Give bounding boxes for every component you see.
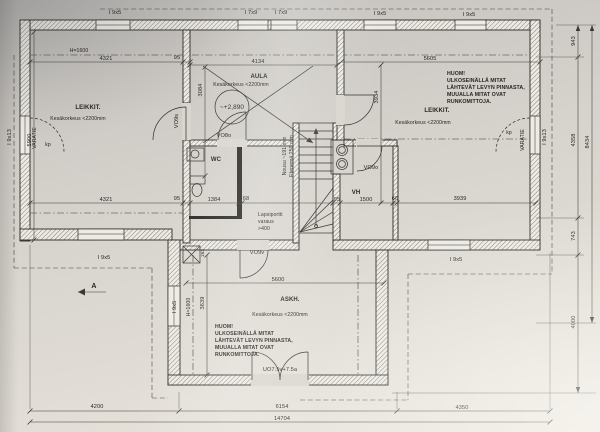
child-gate-note-1: Lapsiportti [258,212,283,218]
dim-aula-3084: 3084 [198,84,204,97]
huom-ext-4: MUUALLA MITAT OVAT [215,345,275,351]
room-label-leikki-left: LEIKKIT. [75,105,100,111]
dim-mid-4321: 4321 [100,197,113,203]
room-note-leikki-left: Kesäkorkeus <2200mm [50,116,106,122]
huom-right-5: RUNKOMITTOJA. [447,99,492,105]
dim-bottom-6154: 6154 [276,404,289,410]
section-label-a: A [91,283,96,290]
dim-mid-95a: 95 [174,196,180,202]
window-label-ext-left: I 9x5 [172,301,178,314]
stair-run-note: Etenemä 250 mm [289,135,295,177]
dim-total-14704: 14704 [274,416,290,422]
room-label-vh: VH [352,190,361,196]
wc-toilet-icon [190,176,205,184]
window-label-top-4: I 9x5 [374,11,387,17]
huom-right-1: HUOM! [447,71,465,77]
room-note-leikki-right: Kesäkorkeus <2200mm [395,120,451,126]
dim-rside-743: 743 [571,231,577,241]
window-label-top-3: I 7x9 [275,10,288,16]
dim-rside-943: 943 [571,36,577,46]
h1600-left-label: H=1600 [70,48,89,54]
dim-rside-8434: 8434 [585,136,591,149]
dim-flue-small: 163 [200,249,205,257]
dim-mid-68: 68 [243,196,249,202]
dim-ext-3639: 3639 [200,297,206,310]
door-label-vo8o: VO8o [217,133,232,139]
window-label-top-2: I 7x9 [245,10,258,16]
dim-mid-1384: 1384 [208,197,221,203]
window-label-bottom-left: I 9x5 [98,255,111,261]
dim-top-4321: 4321 [100,56,113,62]
wc-sink-icon [191,150,199,158]
dimension-arrowheads [576,25,594,393]
dim-mid-95b: 95 [334,197,340,203]
dim-rside-4358: 4358 [571,134,577,147]
kp-right-label: kp [506,130,512,136]
dimension-extension-lines [30,25,596,409]
huom-right-4: MUUALLA MITAT OVAT [447,92,507,98]
void-cross-arrow [306,138,313,144]
floorplan-drawing: I 9x5 I 7x9 I 7x9 I 9x5 I 9x5 I 9x13 I 9… [0,0,600,432]
window-label-bottom-right: I 9x5 [450,257,463,263]
huom-ext-3: LÄHTEVÄT LEVYN PINNASTA, [215,337,293,344]
dim-bottom-4350: 4350 [456,405,469,411]
dim-bottom-4200: 4200 [91,404,104,410]
dim-mid-1500: 1500 [360,197,373,203]
door-label-uo: UO7.5v+7.5a [263,367,298,373]
varatie-right-label: VARATIE [520,129,526,151]
floorplan-photo: I 9x5 I 7x9 I 7x9 I 9x5 I 9x5 I 9x13 I 9… [0,0,600,432]
window-label-top-5: I 9x5 [463,12,476,18]
dim-mid-3939: 3939 [454,196,467,202]
door-label-vo9o: VO9o [364,165,379,171]
room-label-wc: WC [211,157,222,163]
door-label-vo9s: VO9s [174,114,180,128]
window-label-right: I 9x13 [542,129,548,145]
room-note-askartelu: Kesäkorkeus <2200mm [252,312,308,318]
huom-right-2: ULKOSEINÄLLÄ MITAT [447,77,507,84]
dim-top-95: 95 [174,55,180,61]
level-value: ~+2,890 [220,104,245,111]
stairs [299,123,333,233]
h1600-ext-label: H=1600 [186,298,192,317]
huom-right-3: LÄHTEVÄT LEVYN PINNASTA, [447,84,525,91]
huom-ext-5: RUNKOMITTOJA. [215,352,260,358]
child-gate-note-3: >400 [258,226,270,232]
dim-left-5900: 5900 [27,134,33,147]
kp-left-label: kp [45,142,51,148]
room-note-aula: Kesäkorkeus <2200mm [213,82,269,88]
window-label-top-1: I 9x5 [109,10,122,16]
varatie-kp-arcs [30,118,530,152]
dim-aula-4134: 4134 [252,59,265,65]
huom-ext-2: ULKOSEINÄLLÄ MITAT [215,330,275,337]
room-label-askartelu: ASKH. [280,297,299,303]
dim-ext-5600: 5600 [272,277,285,283]
dim-rside-4000: 4000 [571,316,577,329]
huom-ext-1: HUOM! [215,324,233,330]
dim-right-3934: 3934 [374,91,380,104]
stair-rise-note: Nousu ~191 mm [282,137,288,176]
child-gate-note-2: varaus [258,219,274,225]
room-label-leikki-right: LEIKKIT. [424,108,449,114]
room-label-aula: AULA [250,74,268,80]
dim-right-5605: 5605 [424,56,437,62]
door-label-vo9v: VO9v [250,250,264,256]
section-marker-arrow [78,289,85,296]
dim-mid-66: 66 [392,196,398,202]
window-label-left: I 9x13 [7,129,13,145]
